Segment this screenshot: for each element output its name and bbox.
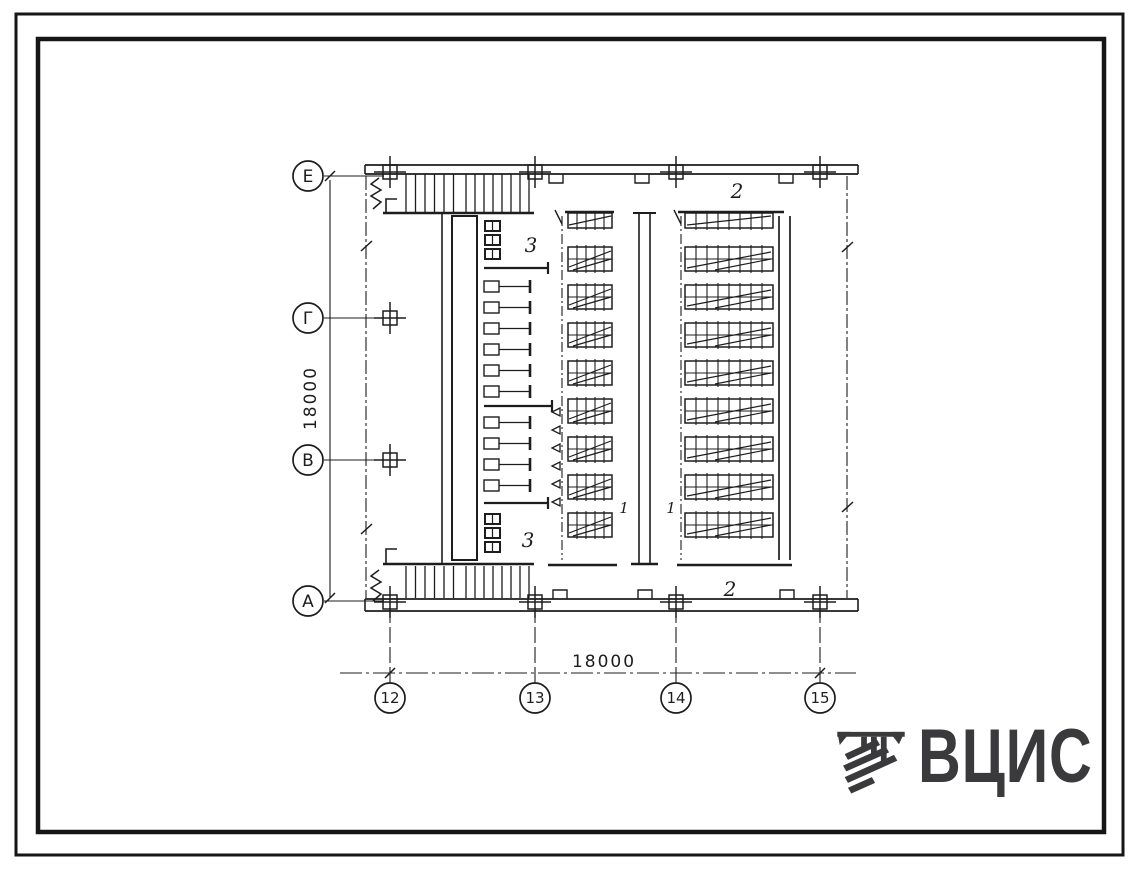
room-label-corridor-top: 2 [730, 179, 744, 203]
vcis-logo: ВЦИС [834, 722, 1139, 810]
break-spring-symbols [371, 178, 381, 601]
staircase-bottom [383, 549, 534, 598]
axis-label-row-1: Е [303, 167, 314, 187]
vertical-dimension: 18000 [301, 171, 335, 603]
staircase-top [383, 174, 534, 213]
axis-label-col-14: 14 [666, 689, 685, 707]
room-label-room-top: 3 [525, 233, 538, 257]
horizontal-dimension: 18000 [340, 652, 856, 678]
axis-label-row-2: Г [303, 309, 313, 329]
column-markers [374, 156, 836, 618]
axis-label-row-3: В [302, 451, 314, 471]
vcis-logo-icon [834, 722, 908, 810]
axis-label-col-13: 13 [525, 689, 544, 707]
stall-rows-right [677, 211, 792, 565]
column-axis-labels: 12 13 14 15 [380, 689, 829, 707]
axis-label-col-15: 15 [810, 689, 829, 707]
drinker-triangles [552, 408, 560, 506]
exterior-walls [361, 165, 858, 611]
vcis-logo-text: ВЦИС [918, 722, 1093, 792]
room-label-hall-right: 1 [666, 499, 676, 517]
dimension-horizontal-18000: 18000 [572, 652, 636, 672]
right-inner-wall [779, 216, 790, 560]
drawing-sheet: Е Г В А 18000 12 13 14 15 18000 2 2 3 3 … [0, 0, 1139, 869]
axis-label-col-12: 12 [380, 689, 399, 707]
dimension-vertical-18000: 18000 [301, 366, 321, 430]
room-label-corridor-bottom: 2 [723, 577, 737, 601]
room-label-hall-left: 1 [619, 499, 629, 517]
axis-label-row-4: А [302, 592, 314, 612]
service-corridor [442, 213, 477, 563]
stall-rows-left [548, 211, 617, 565]
central-divider [631, 213, 658, 564]
room-label-room-bottom: 3 [522, 528, 535, 552]
stall-cells-column [484, 221, 552, 552]
